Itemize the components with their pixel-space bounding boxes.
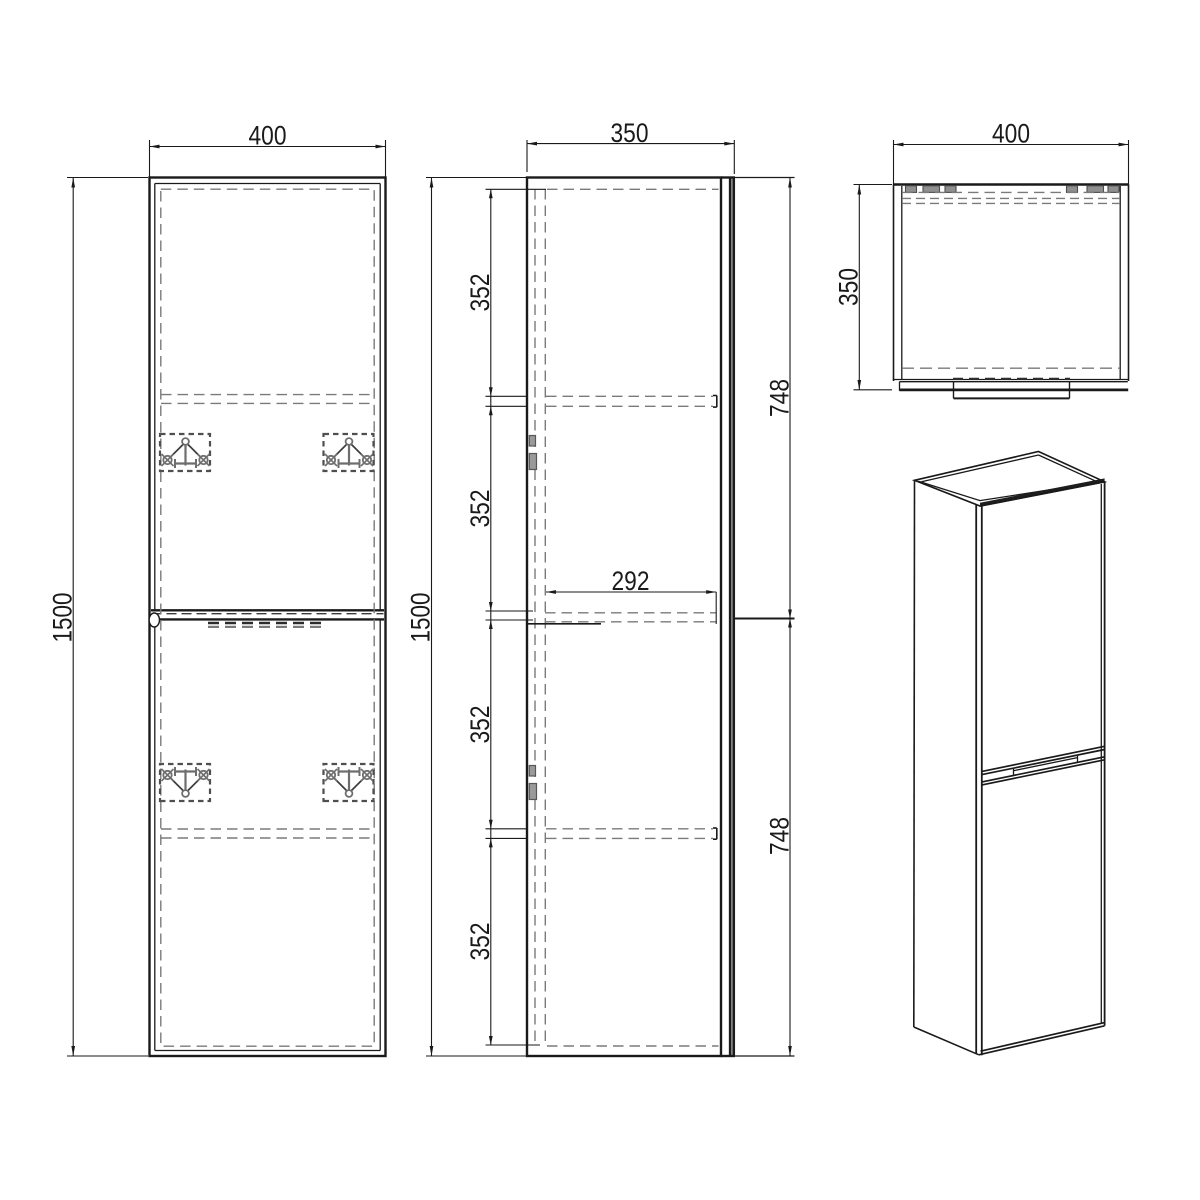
svg-text:748: 748 xyxy=(764,817,794,855)
svg-text:352: 352 xyxy=(465,706,495,744)
svg-text:350: 350 xyxy=(611,118,649,148)
svg-text:292: 292 xyxy=(612,566,650,596)
svg-text:1500: 1500 xyxy=(406,593,436,643)
svg-text:350: 350 xyxy=(834,268,864,306)
svg-text:748: 748 xyxy=(764,379,794,417)
svg-text:352: 352 xyxy=(465,274,495,312)
svg-text:1500: 1500 xyxy=(47,593,77,643)
svg-text:400: 400 xyxy=(249,121,287,151)
svg-text:352: 352 xyxy=(465,490,495,528)
svg-text:400: 400 xyxy=(992,119,1030,149)
svg-text:352: 352 xyxy=(465,923,495,961)
